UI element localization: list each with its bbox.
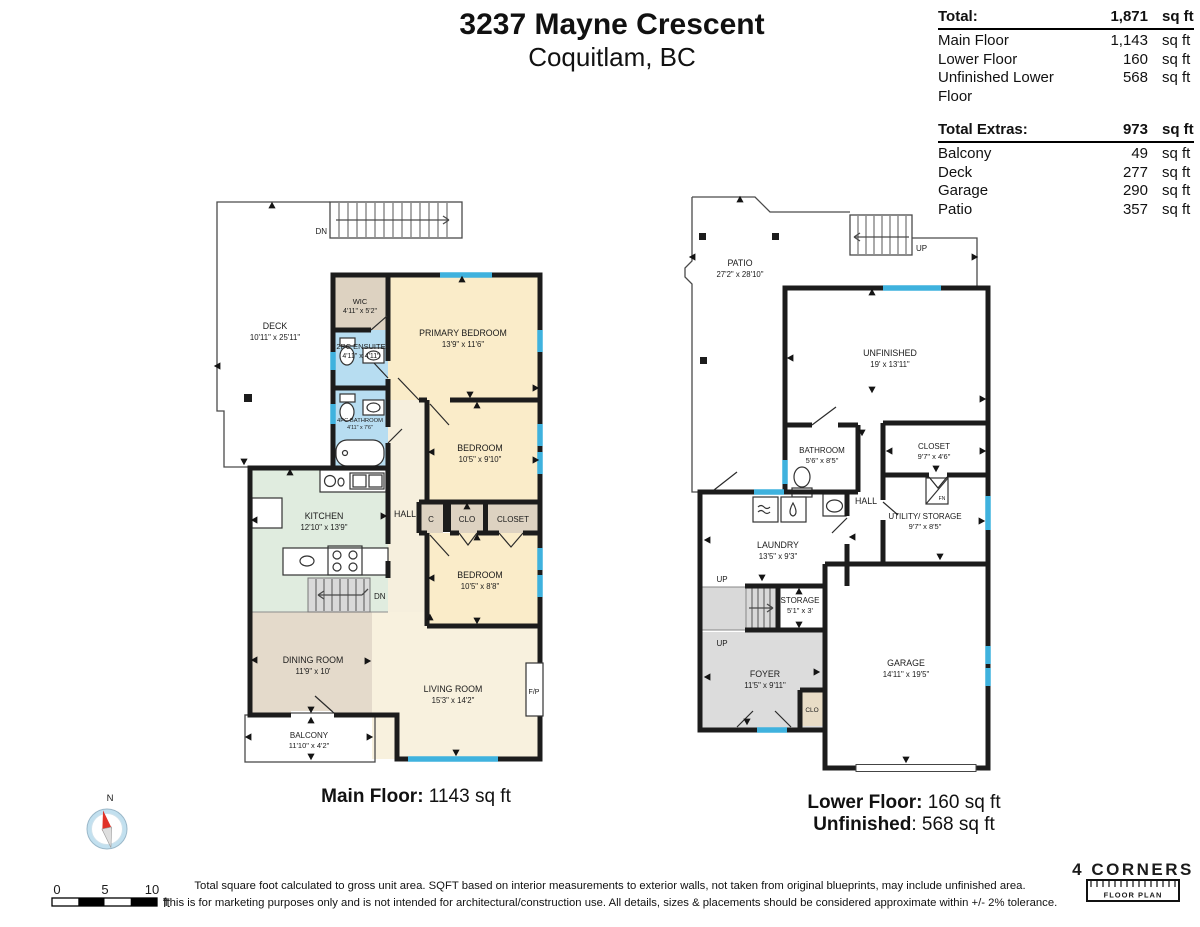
storage-label: STORAGE (781, 596, 820, 605)
lower-bathroom-dims: 5'6" x 8'5" (806, 456, 839, 465)
dining-dims: 11'9" x 10' (295, 667, 331, 676)
patio-post (699, 233, 706, 240)
logo-ruler-ticks (1091, 881, 1175, 887)
wic-label: WIC (353, 297, 368, 306)
up-label-2: UP (716, 639, 727, 648)
utility-label: UTILITY/ STORAGE (888, 512, 961, 521)
unfinished-dims: 19' x 13'11" (870, 360, 910, 369)
bedroom3-label: BEDROOM (457, 570, 502, 580)
garage-label: GARAGE (887, 658, 925, 668)
bathtub (336, 440, 384, 466)
foyer-dims: 11'5" x 9'11" (744, 681, 786, 690)
washer (753, 497, 778, 522)
company-logo: 4 CORNERS FLOOR PLAN (1072, 860, 1194, 901)
bedroom2-dims: 10'5" x 9'10" (459, 455, 502, 464)
deck-post (244, 394, 252, 402)
bedroom2-label: BEDROOM (457, 443, 502, 453)
lower-toilet (794, 467, 810, 487)
stairs-up-label: UP (916, 244, 927, 253)
foyer-label: FOYER (750, 669, 780, 679)
up-label-1: UP (716, 575, 727, 584)
lower-caption-line2: Unfinished: 568 sq ft (754, 814, 1054, 836)
main-floor-plan: DECK 10'11" x 25'11" DN WIC 4'11" x 5'2"… (214, 202, 543, 762)
laundry-label: LAUNDRY (757, 540, 799, 550)
living-dims: 15'3" x 14'2" (432, 696, 475, 705)
lower-exterior-stairs (850, 215, 912, 255)
storage-dims: 5'1" x 3' (787, 606, 814, 615)
living-label: LIVING ROOM (424, 684, 483, 694)
lower-closet-label: CLOSET (918, 442, 950, 451)
dryer (781, 497, 806, 522)
lower-closet-dims: 9'7" x 4'6" (918, 452, 951, 461)
ensuite-dims: 4'11" x 4'11" (342, 353, 380, 360)
logo-brand: 4 CORNERS (1072, 860, 1194, 879)
main-caption-value: 1143 sq ft (424, 786, 511, 807)
bath-sink (363, 400, 384, 415)
balcony-label: BALCONY (290, 731, 329, 740)
balcony-dims: 11'10" x 4'2" (289, 741, 330, 750)
disclaimer-line2: This is for marketing purposes only and … (140, 895, 1080, 912)
lower-interior-stairs (702, 587, 778, 630)
lower-caption-label: Lower Floor: (807, 792, 922, 813)
refrigerator (252, 498, 282, 528)
scale-tick-0: 0 (53, 882, 60, 897)
primary-bedroom-label: PRIMARY BEDROOM (419, 328, 507, 338)
furnace-label: FN (939, 496, 946, 502)
main-exterior-stairs (330, 202, 462, 238)
floor-plan-page: 3237 Mayne Crescent Coquitlam, BC Total:… (0, 0, 1200, 927)
primary-bedroom-dims: 13'9" x 11'6" (442, 340, 484, 349)
closet-clo-label: CLO (459, 515, 475, 524)
compass-north-label: N (107, 793, 114, 804)
logo-sub: FLOOR PLAN (1104, 891, 1163, 900)
garage-dims: 14'11" x 19'5" (883, 670, 930, 679)
compass: N (87, 793, 127, 849)
patio-dims: 27'2" x 28'10" (716, 270, 763, 279)
patio-post (772, 233, 779, 240)
wic-dims: 4'11" x 5'2" (343, 308, 377, 315)
lower-hall-label: HALL (855, 496, 877, 506)
stairs-dn-mid-label: DN (374, 592, 386, 601)
unfinished-label: UNFINISHED (863, 348, 917, 358)
disclaimer-line1: Total square foot calculated to gross un… (140, 878, 1080, 895)
lower-caption-line1: Lower Floor: 160 sq ft (754, 792, 1054, 814)
main-caption-label: Main Floor: (321, 786, 423, 807)
unfinished-caption-label: Unfinished (813, 814, 911, 835)
kitchen-dims: 12'10" x 13'9" (300, 523, 347, 532)
disclaimer: Total square foot calculated to gross un… (140, 878, 1080, 911)
fireplace-label: F/P (529, 689, 540, 696)
main-interior-stairs (308, 578, 370, 612)
dining-label: DINING ROOM (283, 655, 344, 665)
closet-c-label: C (428, 515, 434, 524)
laundry-dims: 13'5" x 9'3" (759, 552, 798, 561)
bedroom3-dims: 10'5" x 8'8" (461, 582, 500, 591)
bathroom-label: 4PC BATHROOM (337, 418, 383, 424)
ensuite-label: 2PC ENSUITE (336, 342, 385, 351)
utility-dims: 9'7" x 8'5" (909, 522, 942, 531)
lower-floor-caption: Lower Floor: 160 sq ft Unfinished: 568 s… (754, 792, 1054, 836)
lower-clo-label: CLO (805, 707, 818, 714)
bath-toilet-tank (340, 394, 355, 402)
patio-label: PATIO (727, 258, 752, 268)
balcony-door-opening (291, 711, 334, 719)
lower-bathroom-label: BATHROOM (799, 446, 845, 455)
hall-label: HALL (394, 509, 416, 519)
unfinished-caption-value: : 568 sq ft (911, 814, 994, 835)
kitchen-label: KITCHEN (305, 511, 344, 521)
patio-post (700, 357, 707, 364)
main-floor-caption: Main Floor: 1143 sq ft (266, 786, 566, 808)
stairs-dn-label: DN (315, 227, 327, 236)
deck-label: DECK (263, 321, 288, 331)
closet-label: CLOSET (497, 515, 529, 524)
garage-door-opening (856, 765, 976, 772)
deck-dims: 10'11" x 25'11" (250, 333, 301, 342)
lower-caption-value: 160 sq ft (922, 792, 1000, 813)
floor-plan-drawing: DECK 10'11" x 25'11" DN WIC 4'11" x 5'2"… (0, 0, 1200, 927)
bathroom-dims: 4'11" x 7'6" (347, 425, 373, 431)
scale-tick-5: 5 (101, 882, 108, 897)
